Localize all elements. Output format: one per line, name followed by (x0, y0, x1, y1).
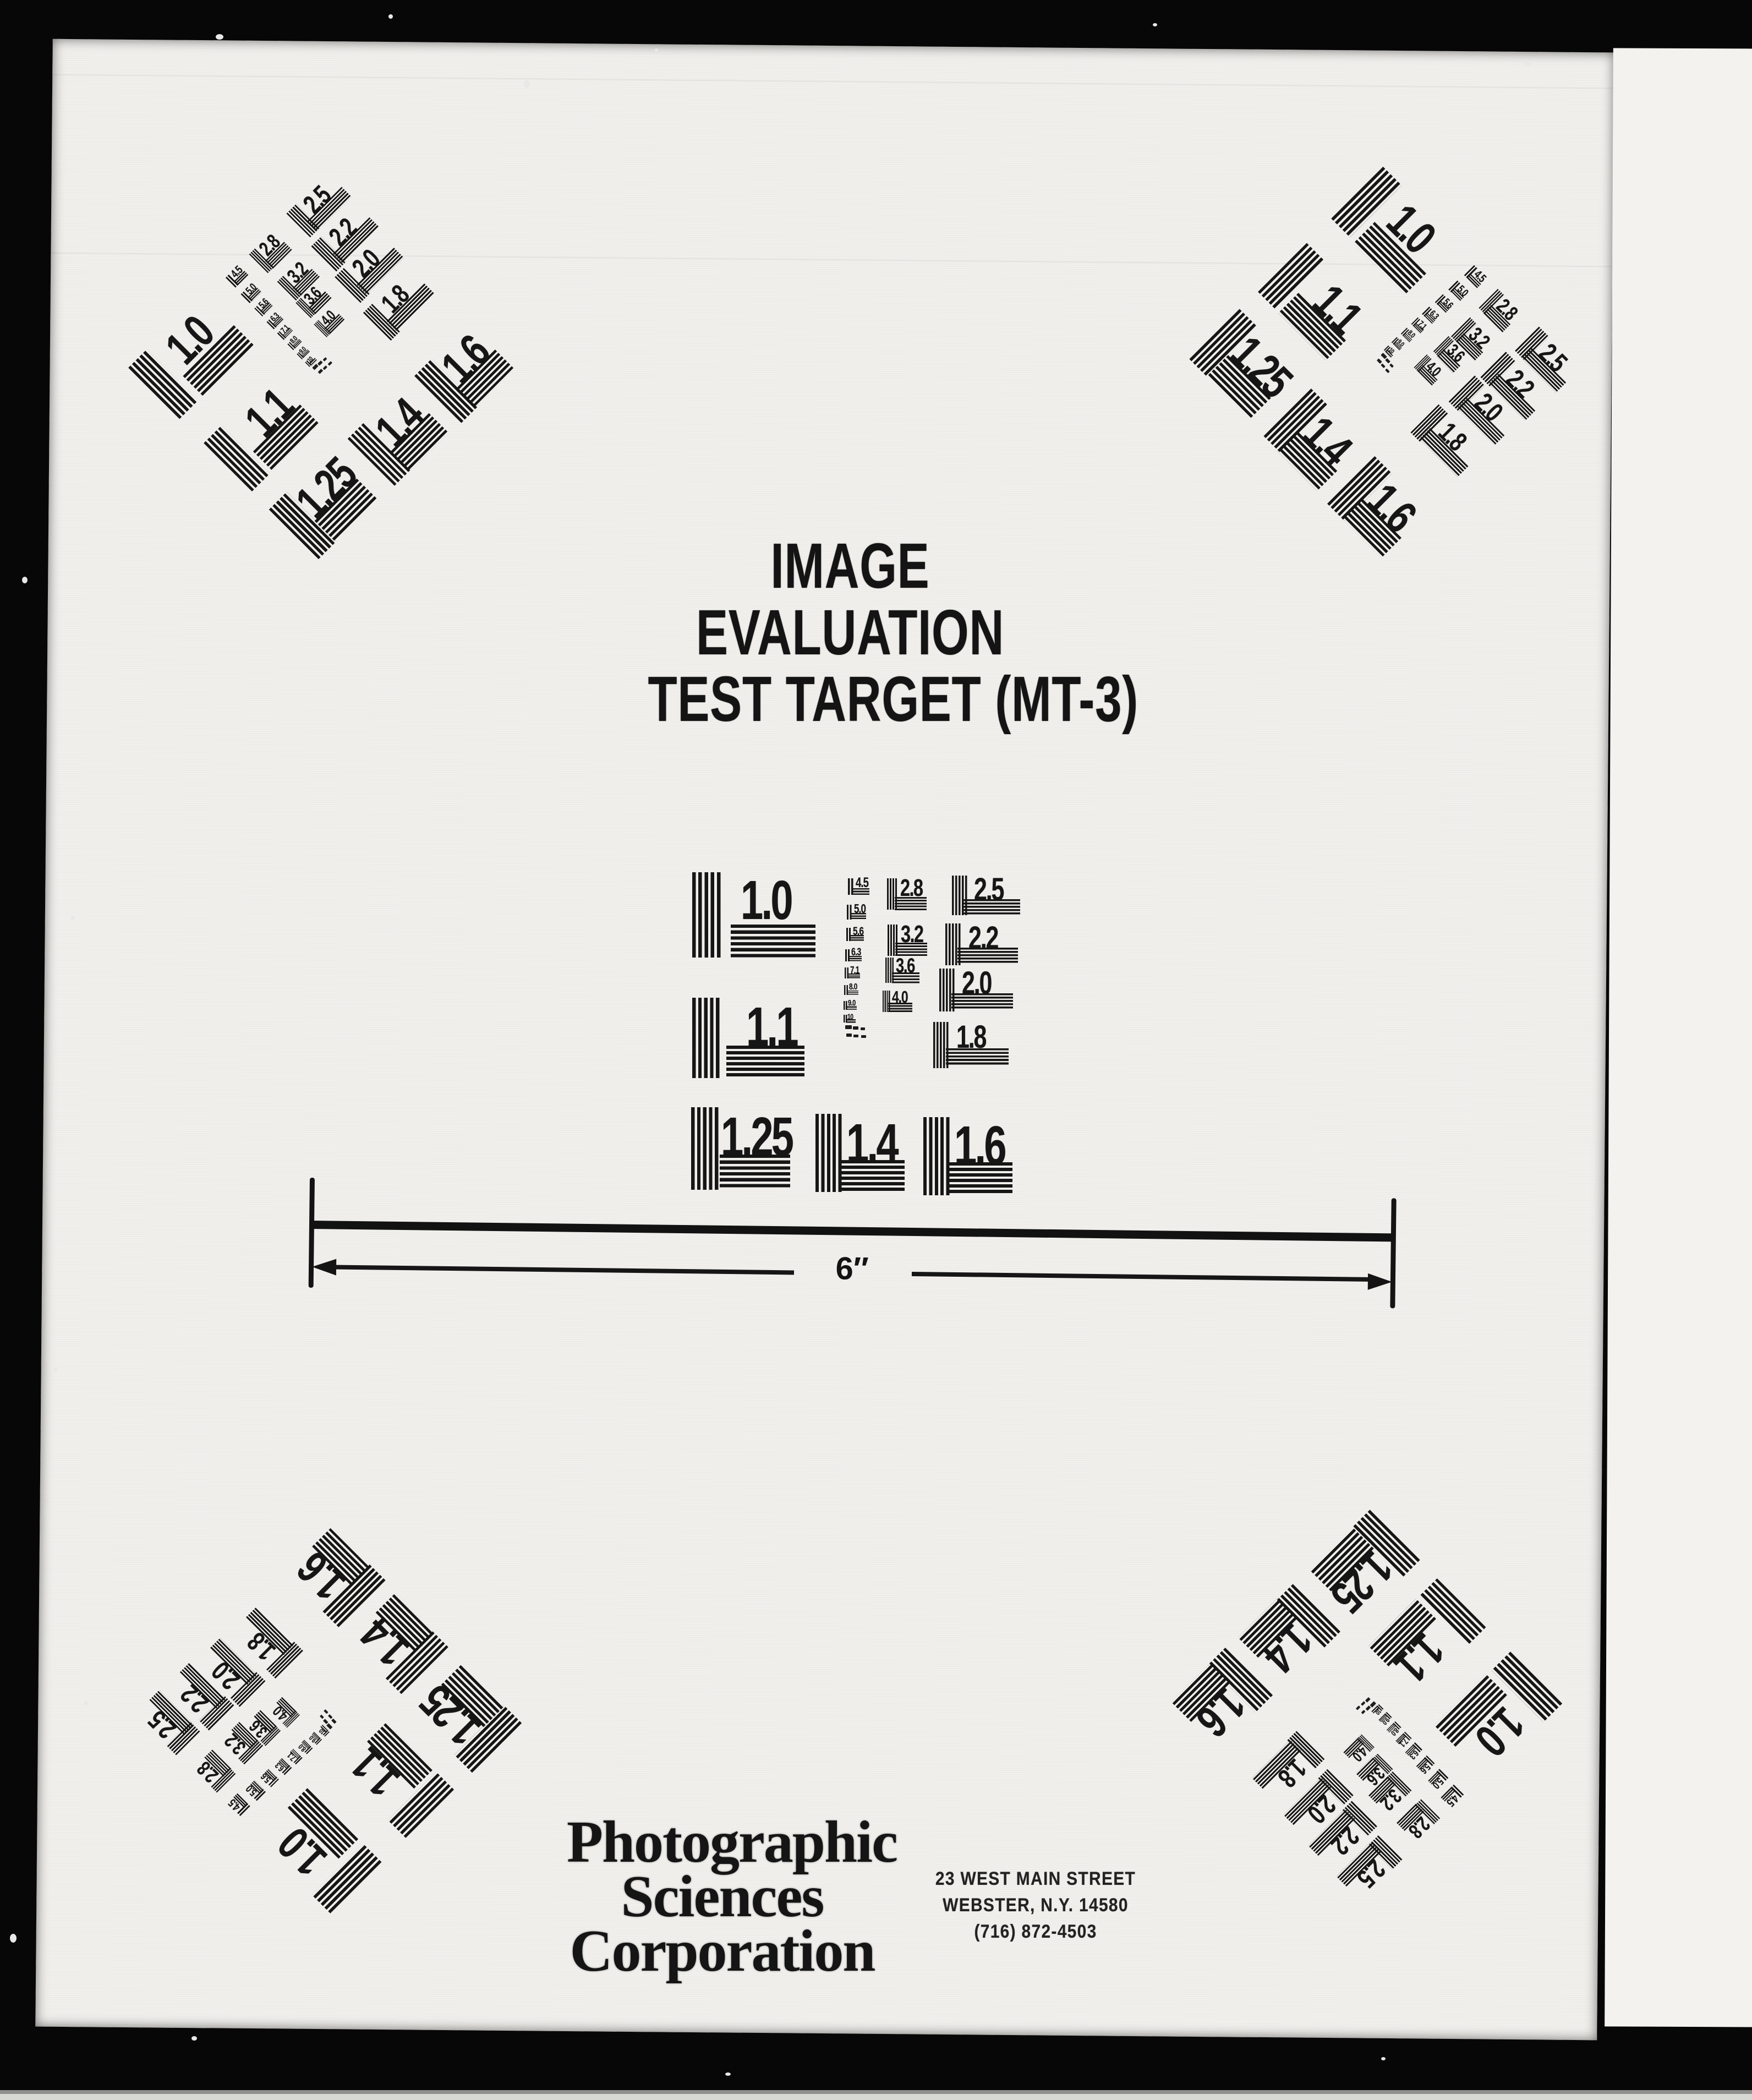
measurement-ruler: 6″ (308, 1178, 1397, 1322)
resolution-label: 1.6 (954, 1118, 1005, 1173)
resolution-label: 1.4 (846, 1116, 897, 1171)
micro-resolution-mark (846, 1033, 852, 1037)
resolution-label: 6.3 (851, 947, 861, 958)
resolution-label: 8.0 (849, 983, 857, 992)
dust-speck (655, 48, 658, 52)
micro-resolution-mark (317, 360, 323, 366)
title-line-2: TEST TARGET (MT-3) (648, 666, 1053, 732)
microfilm-scan: IMAGE EVALUATION TEST TARGET (MT-3) 1.01… (0, 0, 1752, 2100)
resolution-label: 1.25 (721, 1109, 792, 1164)
address-line-3: (716) 872-4503 (934, 1918, 1137, 1945)
dust-speck (22, 577, 28, 583)
resolution-label: 9.0 (848, 999, 856, 1007)
dust-speck (216, 34, 223, 40)
resolution-label: 2.8 (900, 876, 922, 900)
micro-resolution-mark (331, 1719, 337, 1724)
company-name: Photographic Sciences Corporation (567, 1815, 878, 1978)
dust-speck (84, 1702, 88, 1705)
resolution-label: 2.5 (974, 874, 1003, 906)
micro-resolution-mark (845, 1025, 852, 1029)
scanner-edge-line (0, 2090, 1752, 2094)
address-line-1: 23 WEST MAIN STREET (934, 1866, 1137, 1892)
resolution-label: 4.0 (892, 988, 907, 1005)
company-address: 23 WEST MAIN STREET WEBSTER, N.Y. 14580 … (934, 1866, 1137, 1945)
resolution-label: 5.0 (854, 903, 866, 915)
resolution-label: 3.6 (896, 955, 915, 976)
address-line-2: WEBSTER, N.Y. 14580 (934, 1892, 1137, 1918)
dust-speck (1381, 2057, 1386, 2060)
scanner-edge-strip (0, 2094, 1752, 2100)
micro-resolution-mark (328, 1714, 332, 1719)
resolution-label: 10 (847, 1013, 853, 1020)
ruler-length-label: 6″ (309, 1244, 1396, 1293)
resolution-label: 1.0 (741, 873, 791, 928)
resolution-label: 5.6 (853, 926, 863, 937)
title-line-1: IMAGE EVALUATION (648, 533, 1053, 666)
micro-resolution-mark (1377, 358, 1382, 364)
resolution-label: 1.1 (746, 999, 797, 1054)
ruler-scale-line (311, 1221, 1394, 1242)
micro-resolution-mark (1361, 1701, 1366, 1706)
resolution-label: 2.0 (962, 967, 991, 999)
adjacent-page-strip (1605, 48, 1752, 2027)
scan-artifact-line (52, 74, 1614, 89)
micro-resolution-mark (861, 1027, 865, 1030)
target-title: IMAGE EVALUATION TEST TARGET (MT-3) (648, 533, 1053, 732)
micro-resolution-mark (320, 1715, 324, 1719)
company-line-3: Corporation (567, 1924, 878, 1978)
resolution-label: 3.2 (901, 922, 923, 947)
micro-resolution-mark (1385, 369, 1390, 374)
micro-resolution-mark (1361, 1710, 1366, 1714)
micro-resolution-mark (853, 1035, 858, 1037)
dust-speck (191, 2036, 197, 2041)
micro-resolution-mark (323, 357, 327, 362)
dust-speck (725, 2072, 731, 2076)
dust-speck (70, 916, 75, 920)
micro-resolution-mark (1385, 358, 1390, 364)
dust-speck (1524, 62, 1531, 66)
micro-resolution-mark (328, 361, 332, 365)
dust-speck (1153, 23, 1157, 26)
micro-resolution-mark (323, 365, 327, 370)
micro-resolution-mark (853, 1026, 858, 1030)
dust-speck (524, 80, 529, 88)
dust-speck (388, 14, 393, 19)
resolution-label: 7.1 (850, 965, 859, 975)
resolution-label: 1.8 (956, 1021, 985, 1053)
micro-resolution-mark (1366, 1705, 1371, 1711)
resolution-label: 4.5 (856, 876, 868, 890)
resolution-label: 2.2 (968, 922, 998, 954)
micro-resolution-mark (324, 1709, 328, 1714)
dust-speck (10, 1934, 17, 1943)
dust-speck (54, 1367, 57, 1372)
micro-resolution-mark (1381, 363, 1386, 368)
company-line-2: Sciences (567, 1869, 878, 1924)
bar-group-vertical (692, 872, 723, 958)
micro-resolution-mark (1356, 1705, 1361, 1710)
micro-resolution-mark (1365, 1697, 1371, 1703)
micro-resolution-mark (861, 1035, 866, 1038)
bar-group-vertical (692, 998, 722, 1078)
test-pattern-center: 1.01.11.251.41.62.52.22.01.82.83.23.64.0… (677, 858, 1062, 1200)
micro-resolution-mark (1389, 363, 1394, 368)
bar-group-vertical (691, 1107, 721, 1190)
micro-resolution-mark (318, 369, 324, 374)
company-line-1: Photographic (567, 1815, 878, 1869)
